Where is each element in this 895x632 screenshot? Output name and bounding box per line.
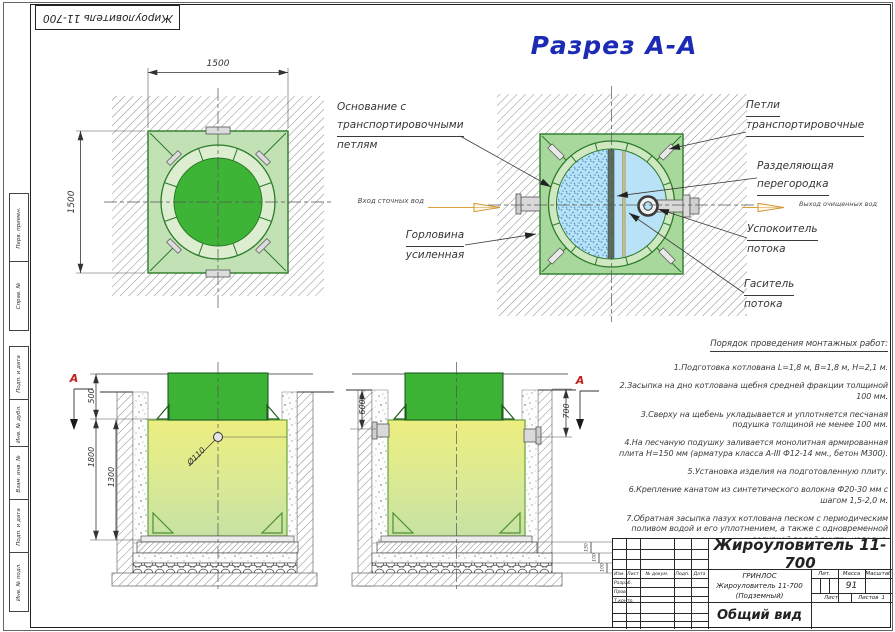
tb-mass-value: 91	[838, 579, 865, 592]
note-item: 5.Установка изделия на подготовленную пл…	[614, 467, 888, 478]
el-dim-1800: 1800	[86, 440, 96, 474]
note-item: 6.Крепление канатом из синтетического во…	[614, 485, 888, 506]
inlet-label: Вход сточных вод	[352, 197, 424, 205]
corner-stamp-text: Жироуловитель 11-700	[43, 12, 173, 24]
er-dim-100a: 100	[592, 547, 599, 569]
tb-col-podp: Подп.	[674, 570, 691, 578]
notes-heading: Порядок проведения монтажных работ:	[614, 339, 888, 352]
plan-dim-left: 1500	[66, 182, 78, 222]
tb-label-lit: Лит.	[811, 570, 838, 578]
tb-col-doc: № докум.	[640, 570, 674, 578]
callout-stiller: Успокоитель потока	[747, 221, 847, 259]
note-item: 4.На песчаную подушку заливается монолит…	[614, 438, 888, 459]
corner-stamp: Жироуловитель 11-700	[35, 5, 180, 30]
section-marker-left: А	[66, 372, 82, 385]
el-dim-1300: 1300	[106, 460, 116, 494]
tb-label-sheets: Листов1	[851, 593, 892, 602]
tb-row-razrab: Разраб.	[614, 579, 640, 587]
er-dim-100b: 100	[600, 557, 607, 579]
callout-damper: Гаситель потока	[744, 276, 834, 314]
tb-label-massa: Масса	[838, 570, 865, 578]
title-block-view: Общий вид	[710, 604, 809, 627]
tb-row-prov: Пров.	[614, 588, 640, 596]
side-cell-sprav: Справ. №	[9, 261, 29, 331]
installation-notes: Порядок проведения монтажных работ: 1.По…	[614, 339, 888, 553]
tb-row-tkontr: Т.контр.	[614, 597, 640, 605]
er-dim-600: 600	[357, 392, 367, 422]
tb-label-sheet: Лист	[811, 593, 851, 602]
tb-col-data: Дата	[691, 570, 708, 578]
callout-loops: Петли транспортировочные	[746, 97, 888, 137]
frame-right	[890, 4, 891, 628]
tb-col-list: Лист	[626, 570, 640, 578]
er-dim-700: 700	[561, 396, 571, 426]
side-cell-vzam-inv: Взам. инв. №	[9, 446, 29, 501]
callout-partition: Разделяющая перегородка	[757, 158, 879, 196]
frame-left	[30, 4, 31, 628]
callout-neck: Горловина усиленная	[395, 227, 475, 265]
title-block: Жироуловитель 11-700 ГРИНЛОС Жироуловите…	[612, 538, 891, 628]
er-dim-150: 150	[584, 537, 591, 559]
tb-label-scale: Масштаб	[865, 570, 892, 578]
side-cell-podp-data-2: Подп. и дата	[9, 499, 29, 554]
title-block-product: Жироуловитель 11-700	[710, 541, 890, 567]
note-item: 3.Сверху на щебень укладывается и уплотн…	[614, 410, 888, 431]
section-marker-right: А	[572, 374, 588, 387]
side-cell-inv-podl: Инв. № подл.	[9, 552, 29, 612]
drawing-sheet: Жироуловитель 11-700 Перв. примен. Справ…	[0, 0, 895, 632]
title-block-doc-name: ГРИНЛОС Жироуловитель 11-700 (Подземный)	[710, 571, 809, 601]
side-cell-inv-dubl: Инв. № дубл.	[9, 399, 29, 448]
note-item: 2.Засыпка на дно котлована щебня средней…	[614, 381, 888, 402]
callout-base: Основание с транспортировочными петлям	[337, 99, 477, 155]
section-title: Разрез А-А	[504, 28, 724, 62]
outlet-label: Выход очищенных вод	[799, 200, 891, 208]
side-cell-perv-primen: Перв. примен.	[9, 193, 29, 263]
plan-dim-top: 1500	[193, 58, 243, 70]
side-cell-podp-data-1: Подп. и дата	[9, 346, 29, 401]
tb-col-izm: Изм.	[613, 570, 626, 578]
el-dim-500: 500	[86, 381, 96, 411]
note-item: 1.Подготовка котлована L=1,8 м, В=1,8 м,…	[614, 363, 888, 374]
